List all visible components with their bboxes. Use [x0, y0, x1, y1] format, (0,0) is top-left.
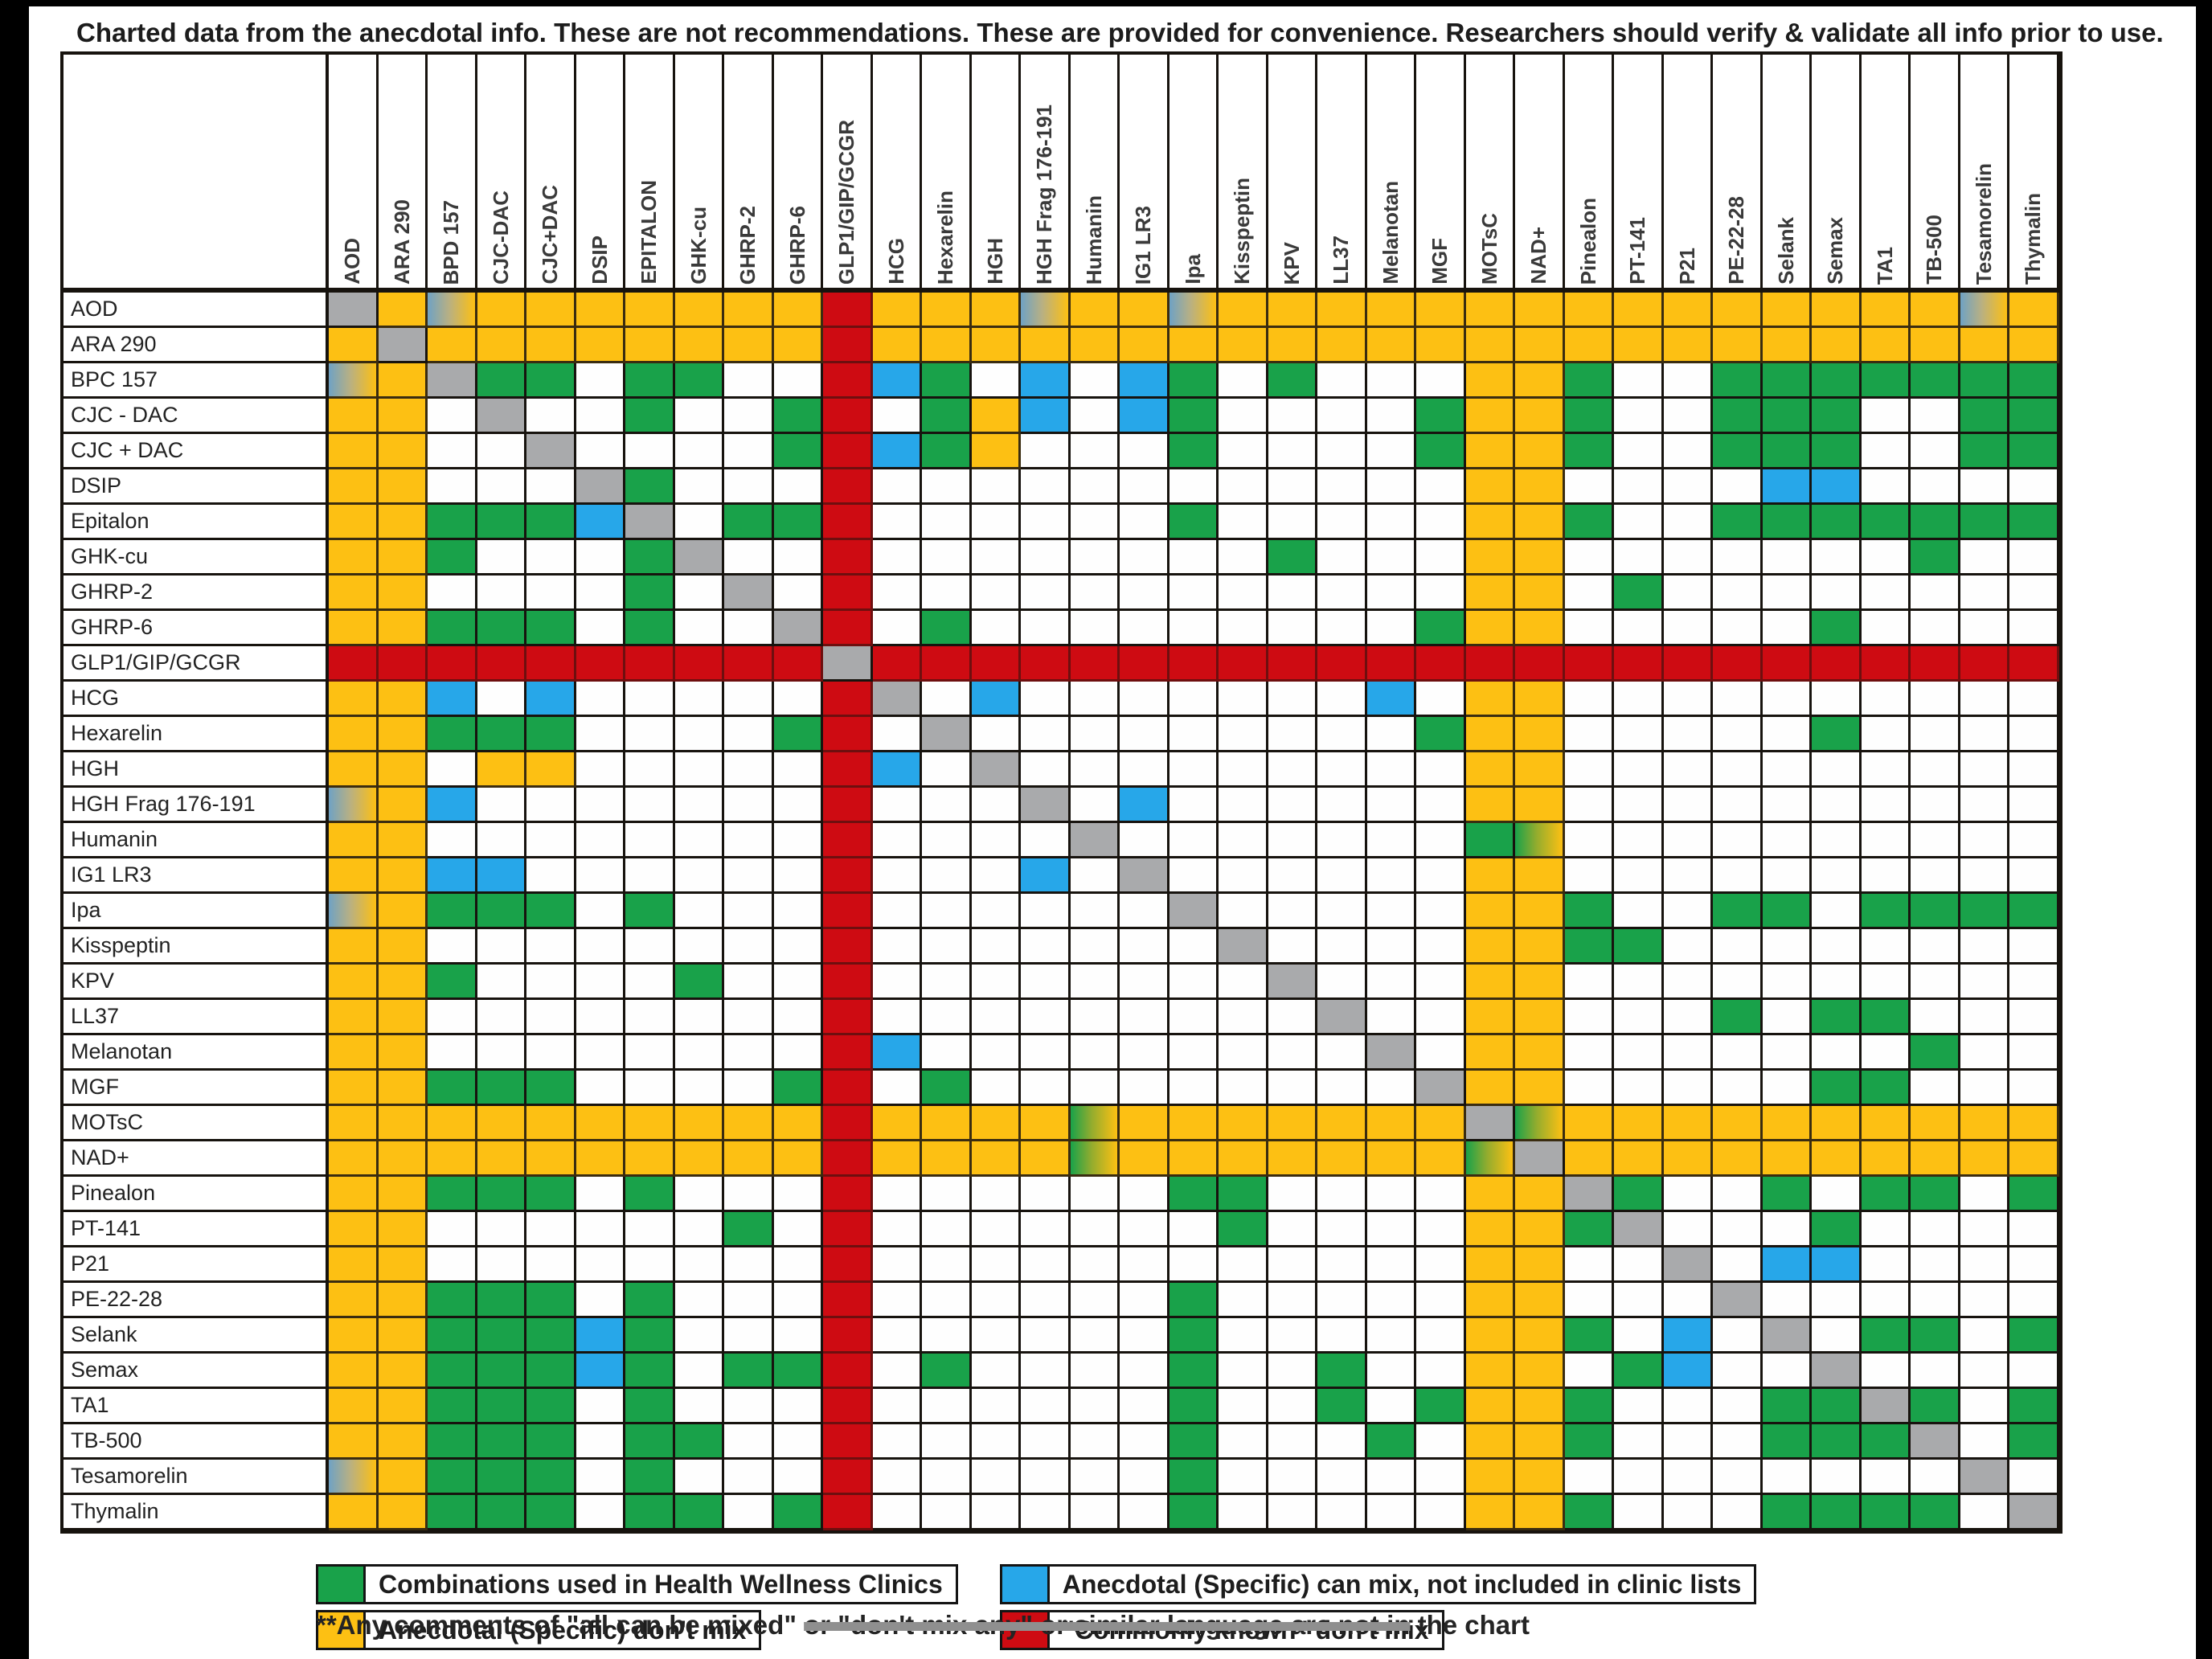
- matrix-cell: [1812, 1071, 1862, 1106]
- matrix-cell: [1812, 576, 1862, 611]
- matrix-cell: [526, 1247, 576, 1283]
- matrix-cell: [379, 646, 428, 682]
- matrix-cell: [1614, 1424, 1664, 1460]
- matrix-cell: [774, 328, 824, 363]
- matrix-cell: [1416, 1354, 1466, 1389]
- matrix-cell: [329, 858, 379, 894]
- matrix-cell: [428, 1177, 477, 1212]
- matrix-cell: [625, 576, 675, 611]
- matrix-cell: [576, 929, 626, 965]
- matrix-cell: [1169, 505, 1219, 540]
- matrix-cell: [1862, 293, 1911, 328]
- matrix-cell: [675, 434, 725, 469]
- matrix-cell: [379, 576, 428, 611]
- matrix-cell: [1317, 1177, 1367, 1212]
- matrix-cell: [1664, 1460, 1714, 1495]
- matrix-cell: [1960, 1283, 2010, 1318]
- matrix-cell: [428, 1424, 477, 1460]
- matrix-cell: [625, 682, 675, 717]
- matrix-cell: [329, 752, 379, 788]
- matrix-cell: [329, 1071, 379, 1106]
- matrix-cell: [1862, 1424, 1911, 1460]
- row-label: TB-500: [63, 1424, 329, 1460]
- matrix-cell: [1169, 1177, 1219, 1212]
- matrix-cell: [1021, 1247, 1071, 1283]
- matrix-cell: [1268, 1354, 1318, 1389]
- matrix-cell: [1614, 682, 1664, 717]
- matrix-cell: [329, 965, 379, 1000]
- matrix-cell: [1169, 1106, 1219, 1141]
- column-header: Selank: [1763, 55, 1813, 293]
- matrix-cell: [526, 1460, 576, 1495]
- matrix-cell: [972, 576, 1022, 611]
- matrix-cell: [625, 1035, 675, 1071]
- column-header-label: P21: [1677, 248, 1698, 288]
- matrix-cell: [823, 788, 873, 823]
- matrix-cell: [428, 505, 477, 540]
- matrix-cell: [1219, 1035, 1268, 1071]
- matrix-cell: [379, 1106, 428, 1141]
- row-label: MOTsC: [63, 1106, 329, 1141]
- matrix-cell: [1219, 1354, 1268, 1389]
- matrix-cell: [329, 293, 379, 328]
- matrix-cell: [1071, 1106, 1120, 1141]
- matrix-cell: [1664, 1389, 1714, 1424]
- matrix-cell: [625, 1106, 675, 1141]
- row-label: Semax: [63, 1354, 329, 1389]
- matrix-cell: [873, 1424, 923, 1460]
- matrix-cell: [1812, 1424, 1862, 1460]
- matrix-cell: [526, 293, 576, 328]
- matrix-cell: [873, 328, 923, 363]
- matrix-cell: [1120, 1460, 1169, 1495]
- matrix-cell: [1021, 469, 1071, 505]
- matrix-cell: [1021, 576, 1071, 611]
- matrix-cell: [724, 1035, 774, 1071]
- matrix-cell: [1713, 293, 1763, 328]
- matrix-cell: [1862, 540, 1911, 576]
- matrix-cell: [1763, 1495, 1813, 1530]
- matrix-cell: [1812, 1495, 1862, 1530]
- matrix-cell: [1071, 1141, 1120, 1177]
- matrix-cell: [1862, 1000, 1911, 1035]
- matrix-cell: [1763, 611, 1813, 646]
- matrix-cell: [1614, 646, 1664, 682]
- matrix-cell: [576, 293, 626, 328]
- matrix-cell: [625, 752, 675, 788]
- matrix-cell: [1416, 469, 1466, 505]
- matrix-cell: [428, 1460, 477, 1495]
- matrix-cell: [1664, 823, 1714, 858]
- matrix-cell: [1268, 1106, 1318, 1141]
- matrix-cell: [1713, 717, 1763, 752]
- matrix-cell: [1416, 1424, 1466, 1460]
- matrix-cell: [576, 894, 626, 929]
- matrix-cell: [972, 1035, 1022, 1071]
- matrix-cell: [675, 929, 725, 965]
- matrix-cell: [675, 293, 725, 328]
- matrix-cell: [675, 1460, 725, 1495]
- matrix-cell: [526, 894, 576, 929]
- matrix-cell: [1367, 752, 1417, 788]
- matrix-cell: [1515, 858, 1565, 894]
- matrix-cell: [1713, 1389, 1763, 1424]
- matrix-cell: [675, 1000, 725, 1035]
- matrix-cell: [477, 1071, 527, 1106]
- matrix-cell: [1812, 1283, 1862, 1318]
- matrix-cell: [724, 1212, 774, 1247]
- matrix-cell: [1911, 682, 1960, 717]
- matrix-cell: [823, 505, 873, 540]
- matrix-cell: [329, 894, 379, 929]
- matrix-cell: [774, 1283, 824, 1318]
- matrix-cell: [1466, 505, 1516, 540]
- matrix-cell: [1466, 1106, 1516, 1141]
- matrix-cell: [379, 505, 428, 540]
- matrix-cell: [675, 1141, 725, 1177]
- matrix-cell: [2009, 1318, 2059, 1354]
- row-label: NAD+: [63, 1141, 329, 1177]
- matrix-cell: [1367, 293, 1417, 328]
- matrix-cell: [774, 717, 824, 752]
- matrix-cell: [972, 1318, 1022, 1354]
- column-header-label: KPV: [1281, 242, 1302, 288]
- matrix-cell: [625, 1177, 675, 1212]
- matrix-cell: [1614, 965, 1664, 1000]
- matrix-cell: [1416, 682, 1466, 717]
- matrix-cell: [526, 682, 576, 717]
- matrix-cell: [675, 363, 725, 399]
- matrix-cell: [477, 505, 527, 540]
- matrix-cell: [2009, 505, 2059, 540]
- page-title: Charted data from the anecdotal info. Th…: [76, 18, 2164, 48]
- matrix-cell: [1071, 823, 1120, 858]
- matrix-cell: [724, 717, 774, 752]
- matrix-cell: [2009, 1035, 2059, 1071]
- matrix-cell: [1466, 540, 1516, 576]
- matrix-cell: [1862, 1212, 1911, 1247]
- matrix-cell: [1911, 1106, 1960, 1141]
- matrix-cell: [1416, 646, 1466, 682]
- column-header: TA1: [1862, 55, 1911, 293]
- matrix-cell: [1317, 1247, 1367, 1283]
- row-label: DSIP: [63, 469, 329, 505]
- matrix-cell: [1614, 1460, 1664, 1495]
- matrix-cell: [526, 1177, 576, 1212]
- matrix-cell: [1466, 363, 1516, 399]
- matrix-cell: [1515, 1071, 1565, 1106]
- matrix-cell: [1021, 1495, 1071, 1530]
- matrix-cell: [2009, 576, 2059, 611]
- matrix-cell: [1614, 929, 1664, 965]
- row-label: BPC 157: [63, 363, 329, 399]
- matrix-cell: [428, 717, 477, 752]
- matrix-cell: [1515, 1177, 1565, 1212]
- matrix-cell: [2009, 1460, 2059, 1495]
- matrix-cell: [329, 469, 379, 505]
- matrix-cell: [1317, 1071, 1367, 1106]
- row-label: Kisspeptin: [63, 929, 329, 965]
- matrix-cell: [1071, 363, 1120, 399]
- matrix-cell: [1565, 1141, 1615, 1177]
- matrix-cell: [724, 399, 774, 434]
- matrix-cell: [823, 1283, 873, 1318]
- matrix-cell: [1614, 1141, 1664, 1177]
- matrix-cell: [526, 363, 576, 399]
- matrix-cell: [1515, 1212, 1565, 1247]
- matrix-cell: [724, 823, 774, 858]
- matrix-cell: [1268, 894, 1318, 929]
- matrix-cell: [1713, 1283, 1763, 1318]
- matrix-cell: [873, 1071, 923, 1106]
- matrix-cell: [329, 1247, 379, 1283]
- matrix-cell: [1515, 1424, 1565, 1460]
- matrix-cell: [477, 717, 527, 752]
- matrix-cell: [1614, 611, 1664, 646]
- matrix-cell: [675, 682, 725, 717]
- matrix-cell: [724, 929, 774, 965]
- matrix-cell: [526, 823, 576, 858]
- column-header: MGF: [1416, 55, 1466, 293]
- matrix-cell: [2009, 929, 2059, 965]
- matrix-cell: [873, 363, 923, 399]
- matrix-cell: [1713, 540, 1763, 576]
- matrix-cell: [1120, 1000, 1169, 1035]
- matrix-cell: [379, 1141, 428, 1177]
- matrix-cell: [1812, 363, 1862, 399]
- matrix-cell: [675, 505, 725, 540]
- matrix-cell: [675, 611, 725, 646]
- matrix-cell: [922, 469, 972, 505]
- matrix-cell: [1713, 965, 1763, 1000]
- matrix-cell: [873, 1460, 923, 1495]
- column-header: LL37: [1317, 55, 1367, 293]
- matrix-cell: [675, 328, 725, 363]
- matrix-cell: [1367, 1460, 1417, 1495]
- matrix-cell: [1713, 788, 1763, 823]
- matrix-cell: [1021, 434, 1071, 469]
- matrix-cell: [1515, 1389, 1565, 1424]
- matrix-cell: [2009, 717, 2059, 752]
- matrix-cell: [625, 965, 675, 1000]
- matrix-cell: [1071, 1177, 1120, 1212]
- matrix-cell: [1515, 1000, 1565, 1035]
- matrix-cell: [1466, 894, 1516, 929]
- matrix-cell: [922, 646, 972, 682]
- column-header-label: AOD: [342, 238, 363, 288]
- matrix-cell: [1763, 965, 1813, 1000]
- matrix-cell: [1664, 1424, 1714, 1460]
- matrix-cell: [675, 965, 725, 1000]
- matrix-cell: [1911, 505, 1960, 540]
- matrix-cell: [1763, 1424, 1813, 1460]
- matrix-cell: [428, 858, 477, 894]
- matrix-cell: [774, 611, 824, 646]
- matrix-cell: [2009, 328, 2059, 363]
- matrix-cell: [1664, 540, 1714, 576]
- matrix-cell: [2009, 1495, 2059, 1530]
- matrix-cell: [1862, 1141, 1911, 1177]
- matrix-cell: [576, 399, 626, 434]
- matrix-cell: [1713, 1460, 1763, 1495]
- matrix-cell: [1219, 611, 1268, 646]
- matrix-cell: [1317, 823, 1367, 858]
- matrix-cell: [1862, 1495, 1911, 1530]
- column-header: Hexarelin: [922, 55, 972, 293]
- matrix-cell: [576, 752, 626, 788]
- column-header-label: Semax: [1825, 217, 1845, 288]
- matrix-cell: [477, 293, 527, 328]
- column-header: PT-141: [1614, 55, 1664, 293]
- matrix-cell: [1416, 1000, 1466, 1035]
- matrix-cell: [1120, 1212, 1169, 1247]
- matrix-cell: [1664, 965, 1714, 1000]
- column-header: CJC-DAC: [477, 55, 527, 293]
- matrix-cell: [379, 929, 428, 965]
- matrix-cell: [1120, 1283, 1169, 1318]
- matrix-cell: [972, 1247, 1022, 1283]
- matrix-cell: [1367, 823, 1417, 858]
- matrix-cell: [576, 1424, 626, 1460]
- matrix-cell: [1911, 752, 1960, 788]
- matrix-cell: [2009, 823, 2059, 858]
- matrix-cell: [1466, 576, 1516, 611]
- matrix-cell: [1071, 646, 1120, 682]
- matrix-cell: [1565, 1212, 1615, 1247]
- matrix-cell: [1862, 1318, 1911, 1354]
- matrix-cell: [1614, 1247, 1664, 1283]
- matrix-cell: [724, 540, 774, 576]
- matrix-cell: [675, 1247, 725, 1283]
- matrix-cell: [1763, 646, 1813, 682]
- row-label: GHRP-6: [63, 611, 329, 646]
- matrix-cell: [1466, 1318, 1516, 1354]
- matrix-cell: [1268, 505, 1318, 540]
- matrix-cell: [1515, 434, 1565, 469]
- matrix-cell: [1169, 823, 1219, 858]
- matrix-cell: [428, 965, 477, 1000]
- matrix-cell: [477, 823, 527, 858]
- matrix-cell: [576, 611, 626, 646]
- row-label: Thymalin: [63, 1495, 329, 1530]
- matrix-cell: [2009, 894, 2059, 929]
- matrix-cell: [329, 682, 379, 717]
- matrix-cell: [1812, 1106, 1862, 1141]
- matrix-cell: [329, 1424, 379, 1460]
- matrix-cell: [1021, 1318, 1071, 1354]
- matrix-cell: [1960, 752, 2010, 788]
- row-label: HCG: [63, 682, 329, 717]
- matrix-cell: [1614, 1035, 1664, 1071]
- matrix-cell: [1812, 965, 1862, 1000]
- matrix-cell: [1911, 1141, 1960, 1177]
- matrix-cell: [922, 1318, 972, 1354]
- matrix-cell: [972, 1000, 1022, 1035]
- matrix-cell: [774, 929, 824, 965]
- matrix-cell: [1021, 752, 1071, 788]
- matrix-cell: [576, 469, 626, 505]
- matrix-cell: [1812, 399, 1862, 434]
- matrix-cell: [1862, 1283, 1911, 1318]
- matrix-cell: [1317, 965, 1367, 1000]
- column-header-label: CJC-DAC: [490, 190, 511, 288]
- matrix-cell: [428, 929, 477, 965]
- matrix-cell: [526, 1141, 576, 1177]
- matrix-cell: [1268, 1247, 1318, 1283]
- matrix-cell: [675, 894, 725, 929]
- matrix-cell: [379, 1071, 428, 1106]
- matrix-cell: [576, 328, 626, 363]
- row-label: Melanotan: [63, 1035, 329, 1071]
- matrix-cell: [1763, 823, 1813, 858]
- matrix-cell: [1960, 1141, 2010, 1177]
- matrix-cell: [1219, 965, 1268, 1000]
- matrix-cell: [1169, 788, 1219, 823]
- column-header-label: BPD 157: [440, 200, 461, 289]
- matrix-cell: [922, 894, 972, 929]
- matrix-cell: [1021, 328, 1071, 363]
- matrix-cell: [625, 1141, 675, 1177]
- matrix-cell: [1565, 363, 1615, 399]
- matrix-cell: [1317, 1035, 1367, 1071]
- matrix-cell: [1120, 788, 1169, 823]
- matrix-cell: [1614, 399, 1664, 434]
- matrix-cell: [379, 752, 428, 788]
- matrix-cell: [1614, 894, 1664, 929]
- matrix-cell: [1664, 399, 1714, 434]
- matrix-cell: [1713, 1354, 1763, 1389]
- matrix-cell: [1317, 752, 1367, 788]
- matrix-cell: [1763, 1071, 1813, 1106]
- matrix-cell: [1713, 1106, 1763, 1141]
- matrix-cell: [1120, 469, 1169, 505]
- matrix-cell: [428, 399, 477, 434]
- matrix-cell: [1219, 1424, 1268, 1460]
- matrix-cell: [823, 1247, 873, 1283]
- matrix-cell: [526, 1000, 576, 1035]
- matrix-cell: [972, 469, 1022, 505]
- matrix-cell: [972, 682, 1022, 717]
- column-header: Kisspeptin: [1219, 55, 1268, 293]
- matrix-cell: [922, 1177, 972, 1212]
- matrix-cell: [379, 434, 428, 469]
- matrix-cell: [873, 929, 923, 965]
- column-header-label: Ipa: [1182, 254, 1203, 288]
- matrix-cell: [1911, 1318, 1960, 1354]
- matrix-cell: [1515, 469, 1565, 505]
- blue-swatch-icon: [1000, 1564, 1050, 1604]
- matrix-cell: [1021, 894, 1071, 929]
- matrix-cell: [1071, 1495, 1120, 1530]
- row-label: GHK-cu: [63, 540, 329, 576]
- matrix-cell: [1515, 823, 1565, 858]
- matrix-cell: [1416, 363, 1466, 399]
- matrix-cell: [1763, 363, 1813, 399]
- matrix-cell: [1812, 1318, 1862, 1354]
- matrix-cell: [1862, 328, 1911, 363]
- matrix-cell: [1763, 1177, 1813, 1212]
- matrix-cell: [1021, 399, 1071, 434]
- matrix-cell: [922, 717, 972, 752]
- matrix-cell: [1763, 328, 1813, 363]
- matrix-cell: [477, 399, 527, 434]
- matrix-cell: [1071, 1389, 1120, 1424]
- matrix-cell: [1763, 540, 1813, 576]
- matrix-cell: [477, 788, 527, 823]
- matrix-cell: [625, 1424, 675, 1460]
- matrix-cell: [477, 646, 527, 682]
- matrix-cell: [379, 1177, 428, 1212]
